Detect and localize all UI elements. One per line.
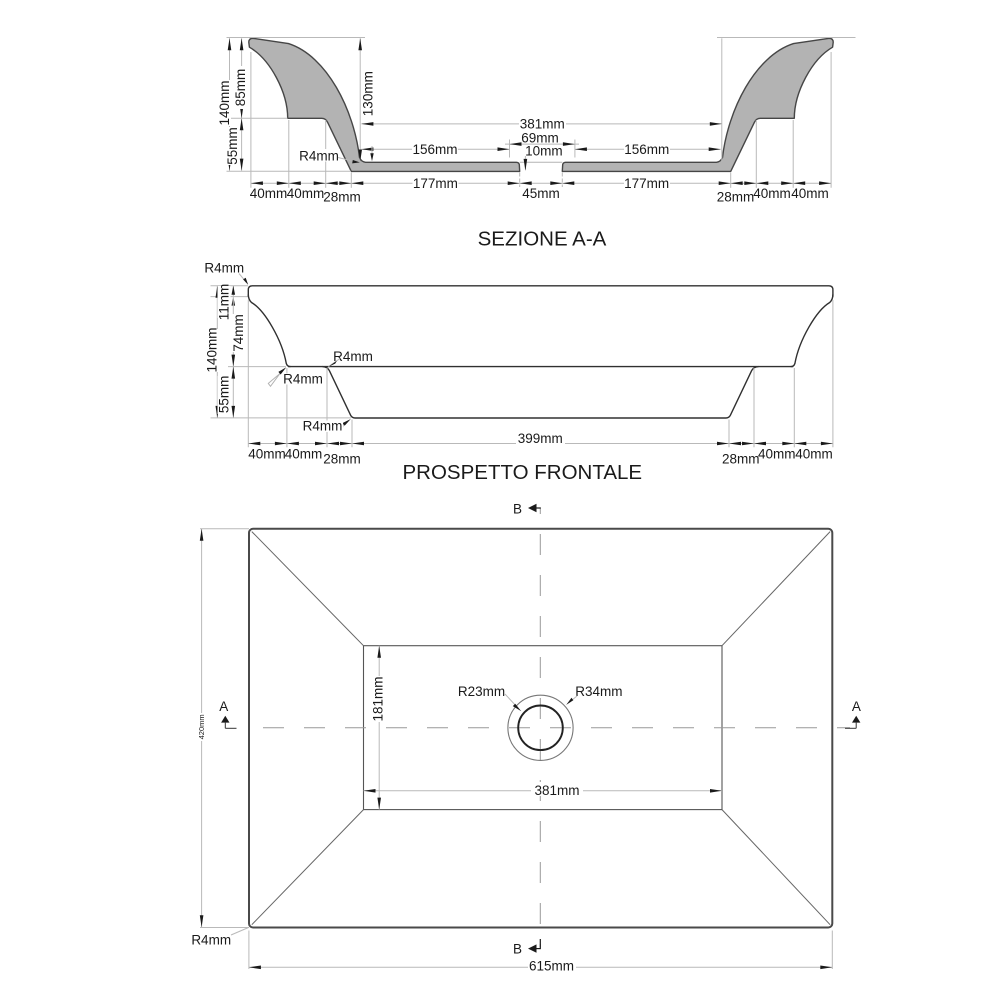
svg-text:45mm: 45mm [522,186,560,201]
svg-text:PROSPETTO FRONTALE: PROSPETTO FRONTALE [403,461,643,484]
svg-text:R4mm: R4mm [303,419,343,434]
svg-text:156mm: 156mm [412,142,457,157]
svg-text:55mm: 55mm [225,127,240,165]
svg-text:B: B [513,942,522,957]
svg-text:177mm: 177mm [624,176,669,191]
svg-text:420mm: 420mm [197,714,206,739]
svg-text:R4mm: R4mm [191,933,231,948]
svg-text:R4mm: R4mm [204,261,244,276]
svg-text:55mm: 55mm [217,376,232,414]
svg-text:130mm: 130mm [360,71,375,116]
svg-text:40mm: 40mm [287,186,325,201]
svg-text:140mm: 140mm [205,327,220,372]
svg-text:40mm: 40mm [795,447,833,462]
svg-text:28mm: 28mm [323,452,361,467]
svg-text:A: A [219,699,228,714]
svg-text:28mm: 28mm [722,452,760,467]
svg-text:85mm: 85mm [233,69,248,107]
svg-text:177mm: 177mm [413,176,458,191]
svg-text:40mm: 40mm [753,186,791,201]
svg-text:156mm: 156mm [624,142,669,157]
svg-text:40mm: 40mm [758,447,796,462]
svg-text:140mm: 140mm [217,80,232,125]
svg-text:R4mm: R4mm [333,349,373,364]
svg-text:399mm: 399mm [518,431,563,446]
svg-text:28mm: 28mm [323,190,361,205]
svg-text:28mm: 28mm [717,190,755,205]
svg-text:R4mm: R4mm [283,372,323,387]
svg-text:74mm: 74mm [231,314,246,352]
svg-text:R4mm: R4mm [299,149,339,164]
svg-text:381mm: 381mm [520,117,565,132]
svg-text:40mm: 40mm [248,447,286,462]
svg-text:B: B [513,502,522,517]
svg-text:R34mm: R34mm [575,684,622,699]
svg-text:40mm: 40mm [285,447,323,462]
svg-text:R23mm: R23mm [458,684,505,699]
svg-text:11mm: 11mm [217,284,232,321]
svg-text:SEZIONE A-A: SEZIONE A-A [478,228,607,251]
svg-text:10mm: 10mm [525,143,563,158]
svg-text:381mm: 381mm [534,783,579,798]
svg-text:40mm: 40mm [250,186,288,201]
svg-text:181mm: 181mm [371,676,386,721]
svg-text:615mm: 615mm [529,959,574,974]
svg-text:A: A [852,699,861,714]
svg-text:40mm: 40mm [791,186,829,201]
